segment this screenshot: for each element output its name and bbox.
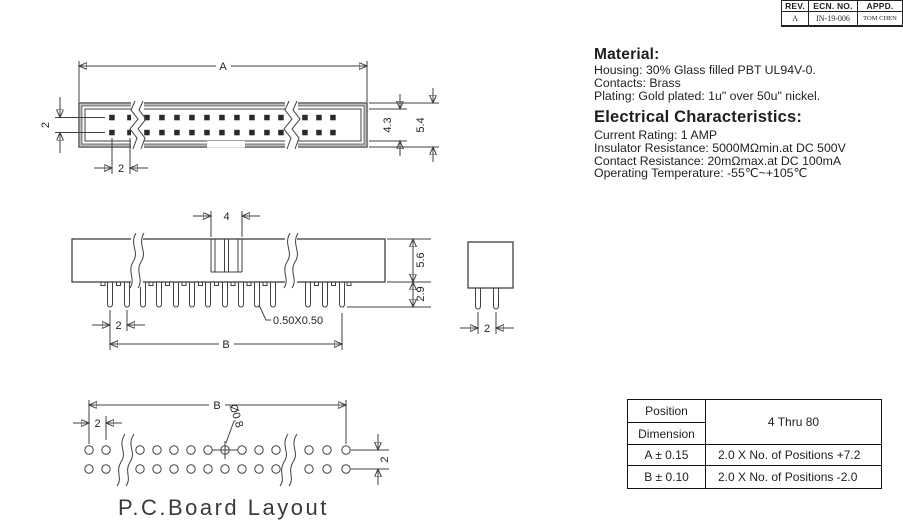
dim-a-label: A [219,61,227,73]
side-view-break-lines [130,233,298,288]
pin-size-label: 0.50X0.50 [273,315,323,327]
material-line-housing: Housing: 30% Glass filled PBT UL94V-0. [594,64,896,77]
top-view-drawing: A 2 2 [35,52,455,180]
dim-a-group: A [79,61,367,102]
dim-row-pitch-label: 2 [40,122,52,128]
pin-size-callout-group: 0.50X0.50 [259,305,323,327]
spec-row-a-formula: 2.0 X No. of Positions +7.2 [706,445,881,466]
revision-table: REV. ECN. NO. APPD. A IN-19-006 TOM CHEN [781,0,903,27]
dim-heights-group: 4.3 5.4 [369,88,439,162]
dim-end-pitch-label: 2 [484,323,490,335]
dim-inner-height-label: 4.3 [382,117,394,132]
rev-cell-ecn: IN-19-006 [809,12,858,25]
spec-row-b-dimension: B ± 0.10 [628,466,706,488]
side-view-body [72,239,385,282]
dim-b-pcb-label: B [213,400,220,412]
dim-pcb-pitch-group: 2 [73,416,122,440]
rev-header-rev: REV. [782,1,809,12]
dim-side-pitch-group: 2 [92,310,145,332]
spec-corner-dimension: Dimension [628,423,706,445]
datasheet-page: { "rev_table": { "headers": { "rev": "RE… [0,0,903,518]
spec-row-b-formula: 2.0 X No. of Positions -2.0 [706,466,881,488]
material-heading: Material: [594,46,896,64]
side-view-pins [108,282,345,307]
pcb-holes-row-2 [85,465,350,473]
side-view-drawing: 4 5.6 2.9 2 0.50X0.50 B [35,203,545,355]
dim-pcb-row-pitch-label: 2 [379,456,391,462]
rev-cell-rev: A [782,12,809,25]
top-view-body [79,103,367,148]
pcb-break-lines [117,434,297,486]
dim-pcb-pitch-label: 2 [94,418,100,430]
dim-pin-length-label: 2.9 [415,286,427,301]
dim-b-side-label: B [222,339,229,351]
dim-side-pitch-label: 2 [115,320,121,332]
dim-slot-width-group: 4 [193,211,260,237]
dim-slot-width-label: 4 [223,211,229,223]
electrical-line-insulator: Insulator Resistance: 5000MΩmin.at DC 50… [594,142,896,155]
spec-row-a-dimension: A ± 0.15 [628,445,706,466]
pcb-layout-caption: P.C.Board Layout [118,495,329,521]
position-dimension-table: Position 4 Thru 80 Dimension A ± 0.15 2.… [627,399,882,489]
end-view: 2 [460,242,514,335]
spec-corner-position: Position [628,400,706,423]
hole-dia-label: Ø0.8 [226,403,245,429]
dim-side-heights-group: 5.6 2.9 [347,239,431,307]
spec-range-header: 4 Thru 80 [706,400,881,445]
dim-pcb-row-pitch-group: 2 [351,434,391,485]
specs-text-block: Material: Housing: 30% Glass filled PBT … [594,46,896,180]
electrical-line-current: Current Rating: 1 AMP [594,129,896,142]
material-line-contacts: Contacts: Brass [594,77,896,90]
rev-cell-appd: TOM CHEN [858,12,902,25]
material-line-plating: Plating: Gold plated: 1u" over 50u" nick… [594,90,896,103]
dim-outer-height-label: 5.4 [415,117,427,132]
electrical-line-temperature: Operating Temperature: -55℃~+105℃ [594,167,896,180]
dim-pin-pitch-label: 2 [118,163,124,175]
rev-header-appd: APPD. [858,1,902,12]
rev-header-ecn: ECN. NO. [809,1,858,12]
dim-body-height-label: 5.6 [415,252,427,267]
dim-b-pcb-group: B [89,400,346,444]
electrical-heading: Electrical Characteristics: [594,108,896,127]
